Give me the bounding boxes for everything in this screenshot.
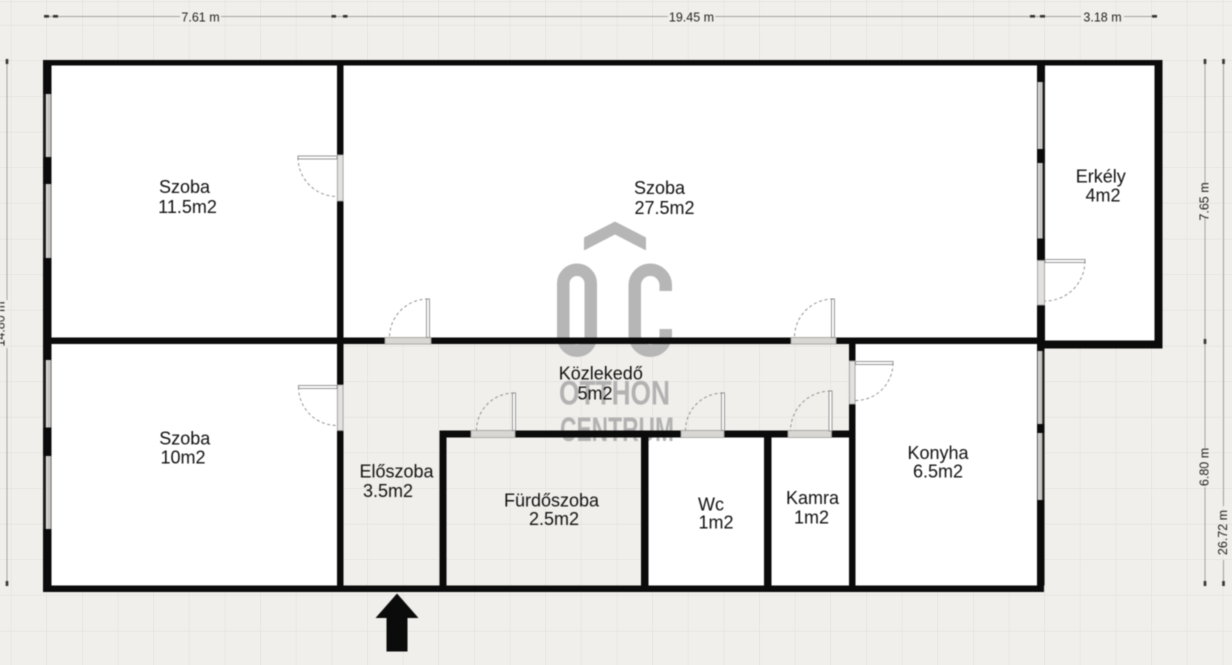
svg-text:Előszoba: Előszoba (359, 462, 434, 482)
svg-text:Közlekedő: Közlekedő (559, 364, 643, 384)
svg-text:Szoba: Szoba (634, 178, 686, 198)
svg-text:3.5m2: 3.5m2 (363, 481, 413, 501)
svg-text:6.80 m: 6.80 m (1198, 448, 1212, 486)
svg-text:4m2: 4m2 (1085, 186, 1120, 206)
svg-text:Erkély: Erkély (1076, 167, 1126, 187)
svg-text:Wc: Wc (698, 495, 724, 515)
svg-text:10m2: 10m2 (160, 447, 205, 467)
svg-text:5m2: 5m2 (577, 384, 612, 404)
svg-text:CENTRUM: CENTRUM (560, 411, 674, 449)
svg-text:7.65 m: 7.65 m (1198, 182, 1212, 220)
svg-text:Szoba: Szoba (159, 177, 211, 197)
svg-text:Fürdőszoba: Fürdőszoba (504, 491, 600, 511)
svg-text:19.45 m: 19.45 m (669, 11, 714, 25)
svg-text:Konyha: Konyha (907, 443, 969, 463)
svg-text:7.61 m: 7.61 m (181, 11, 219, 25)
svg-text:1m2: 1m2 (698, 513, 733, 533)
svg-text:1m2: 1m2 (794, 508, 829, 528)
svg-text:11.5m2: 11.5m2 (158, 197, 217, 217)
svg-text:14.80 m: 14.80 m (0, 301, 8, 346)
svg-text:26.72 m: 26.72 m (1216, 510, 1230, 555)
svg-text:Kamra: Kamra (786, 488, 840, 508)
svg-text:2.5m2: 2.5m2 (529, 509, 579, 529)
svg-text:3.18 m: 3.18 m (1083, 11, 1121, 25)
svg-text:Szoba: Szoba (159, 428, 211, 448)
svg-text:6.5m2: 6.5m2 (913, 462, 963, 482)
svg-text:27.5m2: 27.5m2 (634, 198, 694, 218)
